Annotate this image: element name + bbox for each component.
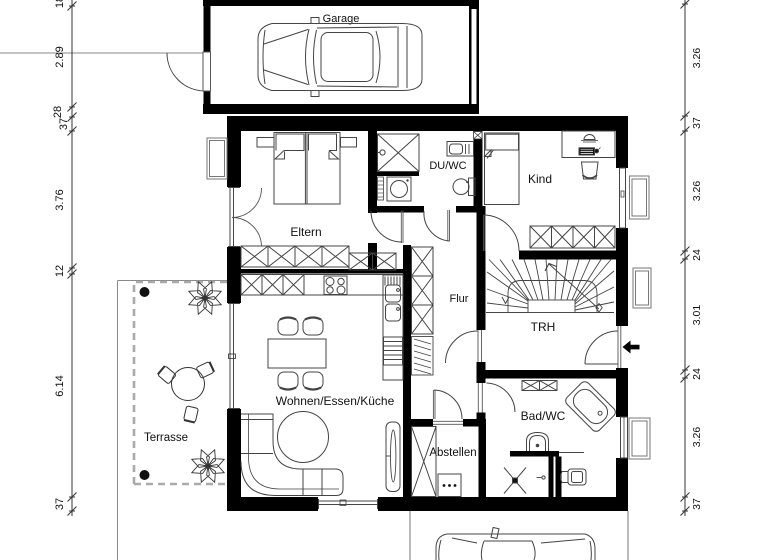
svg-text:Kind: Kind bbox=[528, 172, 552, 186]
svg-text:37: 37 bbox=[54, 498, 66, 510]
svg-text:12: 12 bbox=[54, 265, 66, 277]
svg-text:3.26: 3.26 bbox=[691, 181, 703, 202]
svg-text:2.89: 2.89 bbox=[54, 46, 66, 67]
svg-text:Terrasse: Terrasse bbox=[144, 432, 188, 444]
svg-text:24: 24 bbox=[691, 249, 703, 261]
svg-text:Bad/WC: Bad/WC bbox=[521, 409, 566, 423]
svg-text:24: 24 bbox=[691, 368, 703, 380]
svg-text:18: 18 bbox=[54, 0, 66, 8]
svg-text:3.76: 3.76 bbox=[54, 189, 66, 210]
svg-text:37: 37 bbox=[691, 498, 703, 510]
svg-text:3.26: 3.26 bbox=[691, 427, 703, 448]
svg-text:6.14: 6.14 bbox=[54, 375, 66, 396]
svg-text:TRH: TRH bbox=[531, 320, 556, 334]
svg-text:28: 28 bbox=[52, 106, 64, 118]
svg-text:Eltern: Eltern bbox=[290, 225, 321, 239]
svg-text:3.26: 3.26 bbox=[691, 48, 703, 69]
svg-text:37: 37 bbox=[691, 117, 703, 129]
svg-text:3.01: 3.01 bbox=[691, 305, 703, 326]
svg-text:Wohnen/Essen/Küche: Wohnen/Essen/Küche bbox=[276, 394, 395, 408]
svg-text:DU/WC: DU/WC bbox=[429, 160, 466, 172]
svg-text:37: 37 bbox=[58, 118, 70, 130]
svg-text:Flur: Flur bbox=[450, 293, 469, 305]
